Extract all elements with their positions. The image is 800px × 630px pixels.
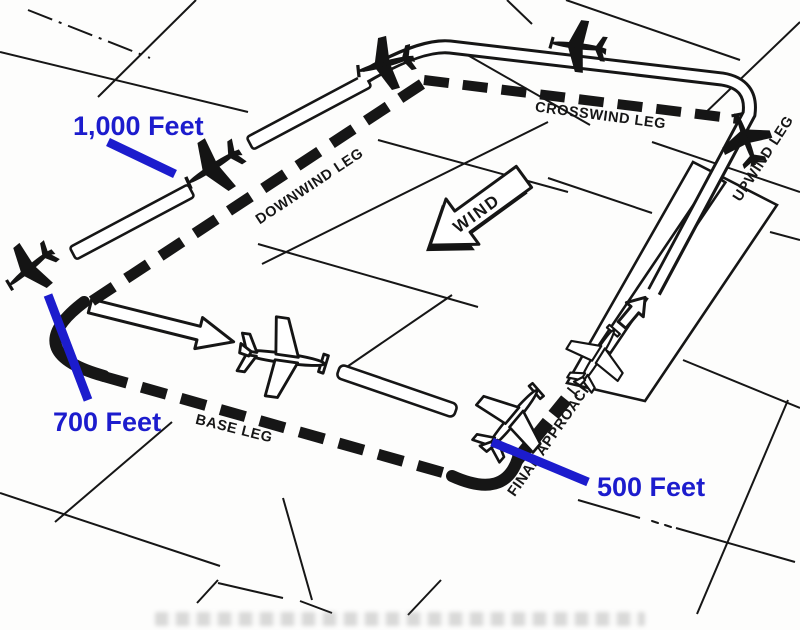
base-altitude-label: 700 Feet: [53, 407, 161, 437]
traffic-pattern-diagram: WIND CROSSWIND LEG DOWNWIND LEG UPWIND L…: [0, 0, 800, 630]
downwind-altitude-line: [108, 142, 175, 174]
final-altitude-label: 500 Feet: [597, 472, 705, 502]
base-final-corner: [452, 458, 518, 485]
cut-off-caption: [155, 612, 645, 626]
field-strip-icon: [247, 74, 372, 149]
airplane-icon: [234, 312, 333, 403]
downwind-altitude-label: 1,000 Feet: [73, 111, 204, 141]
field-strip-icon: [336, 364, 458, 418]
wind-arrow-icon: WIND: [410, 154, 541, 273]
diagram-canvas: WIND CROSSWIND LEG DOWNWIND LEG UPWIND L…: [0, 0, 800, 630]
entry-arrow-icon: [86, 290, 237, 357]
airplane-icon: [0, 230, 69, 307]
